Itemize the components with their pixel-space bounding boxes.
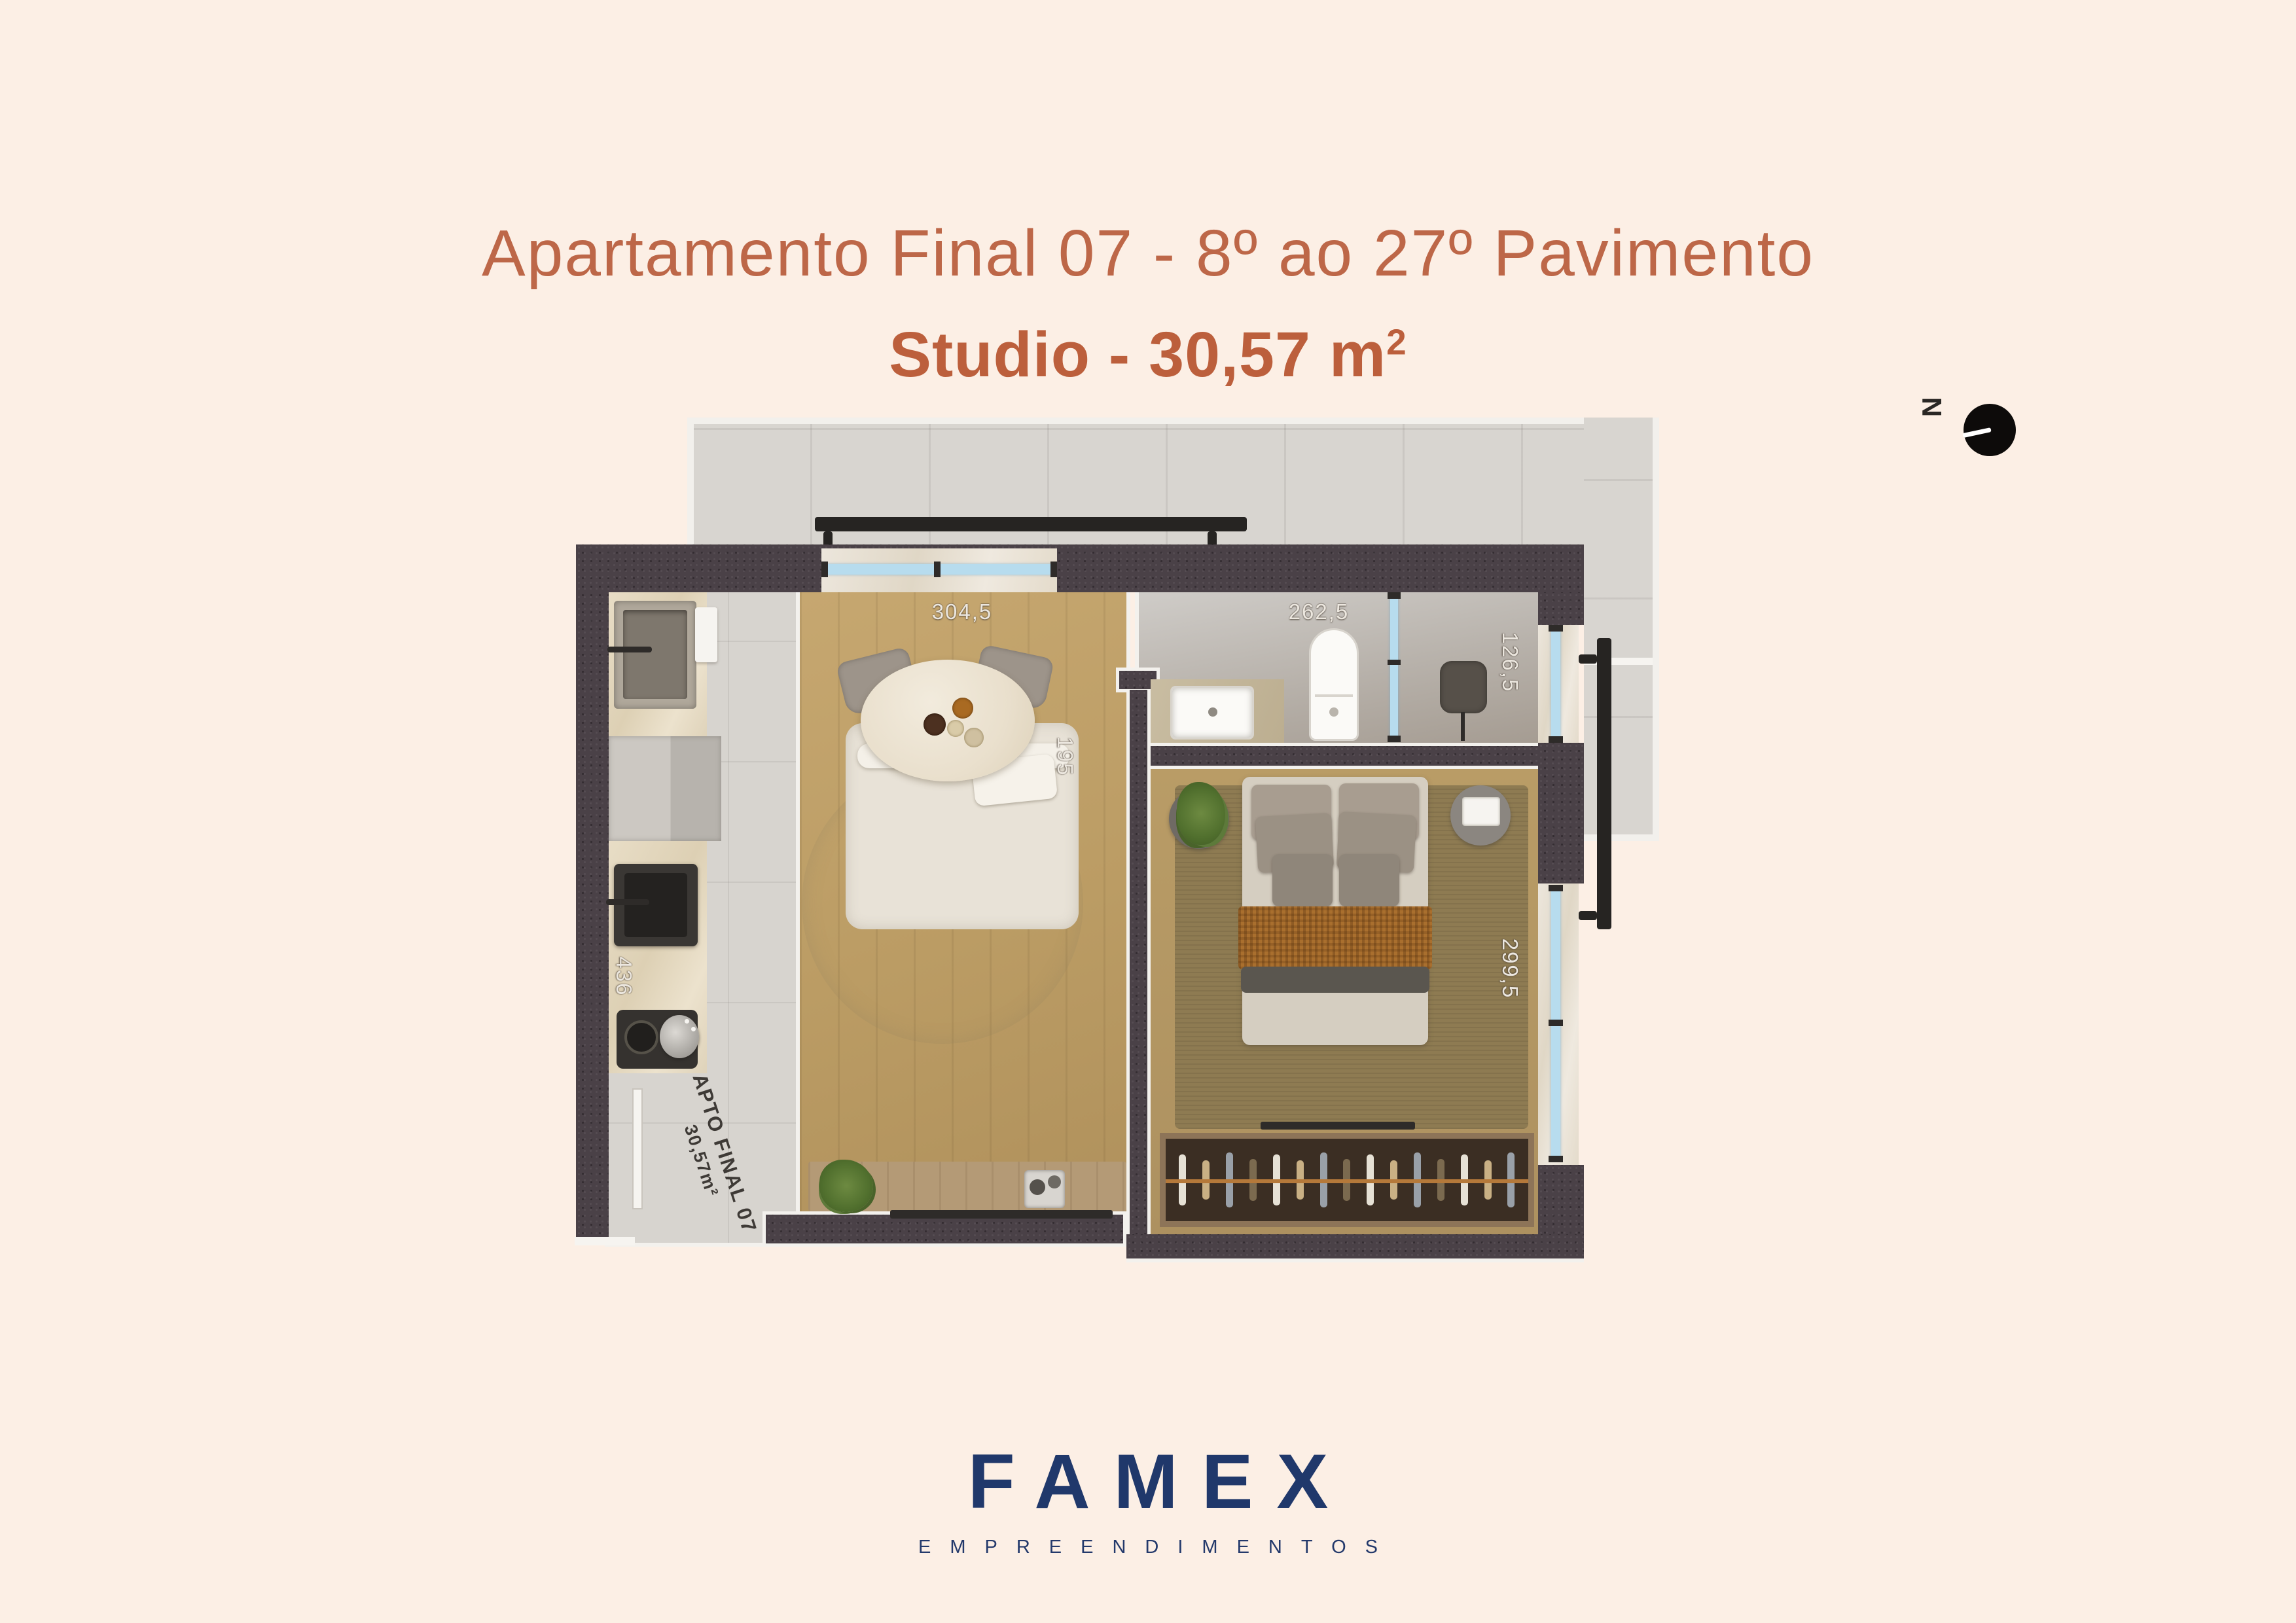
wardrobe-rail: [1166, 1179, 1528, 1183]
cooktop-burner: [624, 1020, 658, 1054]
kitchen-faucet: [606, 899, 649, 905]
shower-glass-partition: [1390, 596, 1398, 741]
dining-table: [861, 660, 1035, 781]
wall-left: [576, 553, 609, 1237]
bed-pillow-small-left: [1272, 854, 1333, 906]
toilet-seat-line: [1315, 694, 1353, 697]
wall-top: [576, 544, 1584, 592]
bedroom-window-cap-center: [1549, 1020, 1563, 1026]
wall-left-bottom-sill: [575, 1237, 635, 1245]
bed: [1242, 777, 1428, 1045]
console-plant: [819, 1160, 873, 1212]
wall-right-middle: [1538, 743, 1584, 883]
wall-right-upper: [1538, 592, 1584, 625]
nightstand-plant: [1177, 782, 1225, 845]
bath-window-cap-top: [1549, 625, 1563, 632]
console-coffee-machine: [1024, 1170, 1065, 1208]
coffee-machine-knob-2: [1048, 1175, 1061, 1188]
railing-bar-right: [1597, 638, 1611, 929]
shower-column: [1461, 712, 1465, 741]
table-plate-1: [952, 698, 973, 719]
cooktop-knob-1: [685, 1019, 689, 1024]
bath-sink: [1170, 686, 1254, 740]
wall-bath-bottom: [1151, 743, 1538, 769]
table-plate-2: [924, 713, 946, 736]
kitchen-appliance: [695, 607, 717, 662]
table-plate-3: [947, 720, 964, 737]
brand-logo: FAMEX: [0, 1437, 2296, 1526]
floor-plan: 304,5 262,5 126,5 195 436 299,5 APTO FIN…: [0, 0, 2296, 1623]
dim-bath-window-width: 126,5: [1498, 632, 1522, 693]
cooktop-knob-2: [691, 1027, 696, 1031]
kitchen-cabinet-block: [609, 736, 721, 841]
railing-post-right-bottom: [1579, 911, 1597, 920]
kitchen-sink-basin: [624, 873, 687, 937]
shower-glass-cap-mid: [1388, 660, 1401, 665]
dim-living-depth: 195: [1052, 736, 1077, 776]
brand-tagline: EMPREENDIMENTOS: [0, 1537, 2296, 1558]
table-plate-4: [964, 728, 984, 747]
tv-screen: [890, 1210, 1113, 1219]
bed-pillow-small-right: [1339, 854, 1399, 906]
railing-bar-top: [815, 517, 1247, 531]
shower-glass-cap-bottom: [1388, 736, 1401, 742]
shower-mat: [1440, 661, 1487, 713]
entry-door-leaf: [632, 1088, 643, 1209]
terrace-floor-right: [1584, 418, 1659, 841]
bedroom-window-cap-bottom: [1549, 1156, 1563, 1162]
compass-north-label: N: [1916, 397, 1948, 417]
laundry-faucet: [607, 647, 652, 652]
shower-glass-cap-top: [1388, 592, 1401, 599]
nightstand-tray: [1462, 797, 1500, 826]
dim-bedroom-depth: 299,5: [1498, 938, 1522, 999]
living-window-mullion-right: [1050, 562, 1057, 577]
bedroom-window-cap-top: [1549, 885, 1563, 891]
dim-living-width: 304,5: [932, 599, 993, 624]
wall-living-bedroom: [1126, 690, 1151, 1234]
bath-window-glass: [1551, 630, 1560, 738]
kettle: [660, 1015, 699, 1058]
laundry-sink-basin: [623, 610, 687, 699]
bedroom-tv: [1261, 1122, 1415, 1130]
kitchen-sink: [614, 864, 698, 946]
railing-post-right-top: [1579, 654, 1597, 664]
wardrobe: [1160, 1133, 1534, 1227]
coffee-machine-knob-1: [1030, 1179, 1045, 1195]
laundry-sink: [614, 601, 696, 709]
toilet: [1309, 628, 1359, 741]
bath-sink-drain: [1208, 707, 1217, 717]
bed-blanket-fold: [1241, 967, 1429, 993]
cooktop: [617, 1010, 698, 1069]
bed-blanket: [1238, 906, 1432, 969]
living-window-mullion-left: [821, 562, 828, 577]
toilet-flush-button: [1329, 707, 1338, 717]
bath-window-cap-bottom: [1549, 736, 1563, 743]
wall-bottom-right: [1126, 1234, 1584, 1262]
living-window-mullion-center: [934, 562, 941, 577]
dim-bath-width: 262,5: [1289, 599, 1350, 624]
dim-kitchen-depth: 436: [611, 956, 636, 996]
